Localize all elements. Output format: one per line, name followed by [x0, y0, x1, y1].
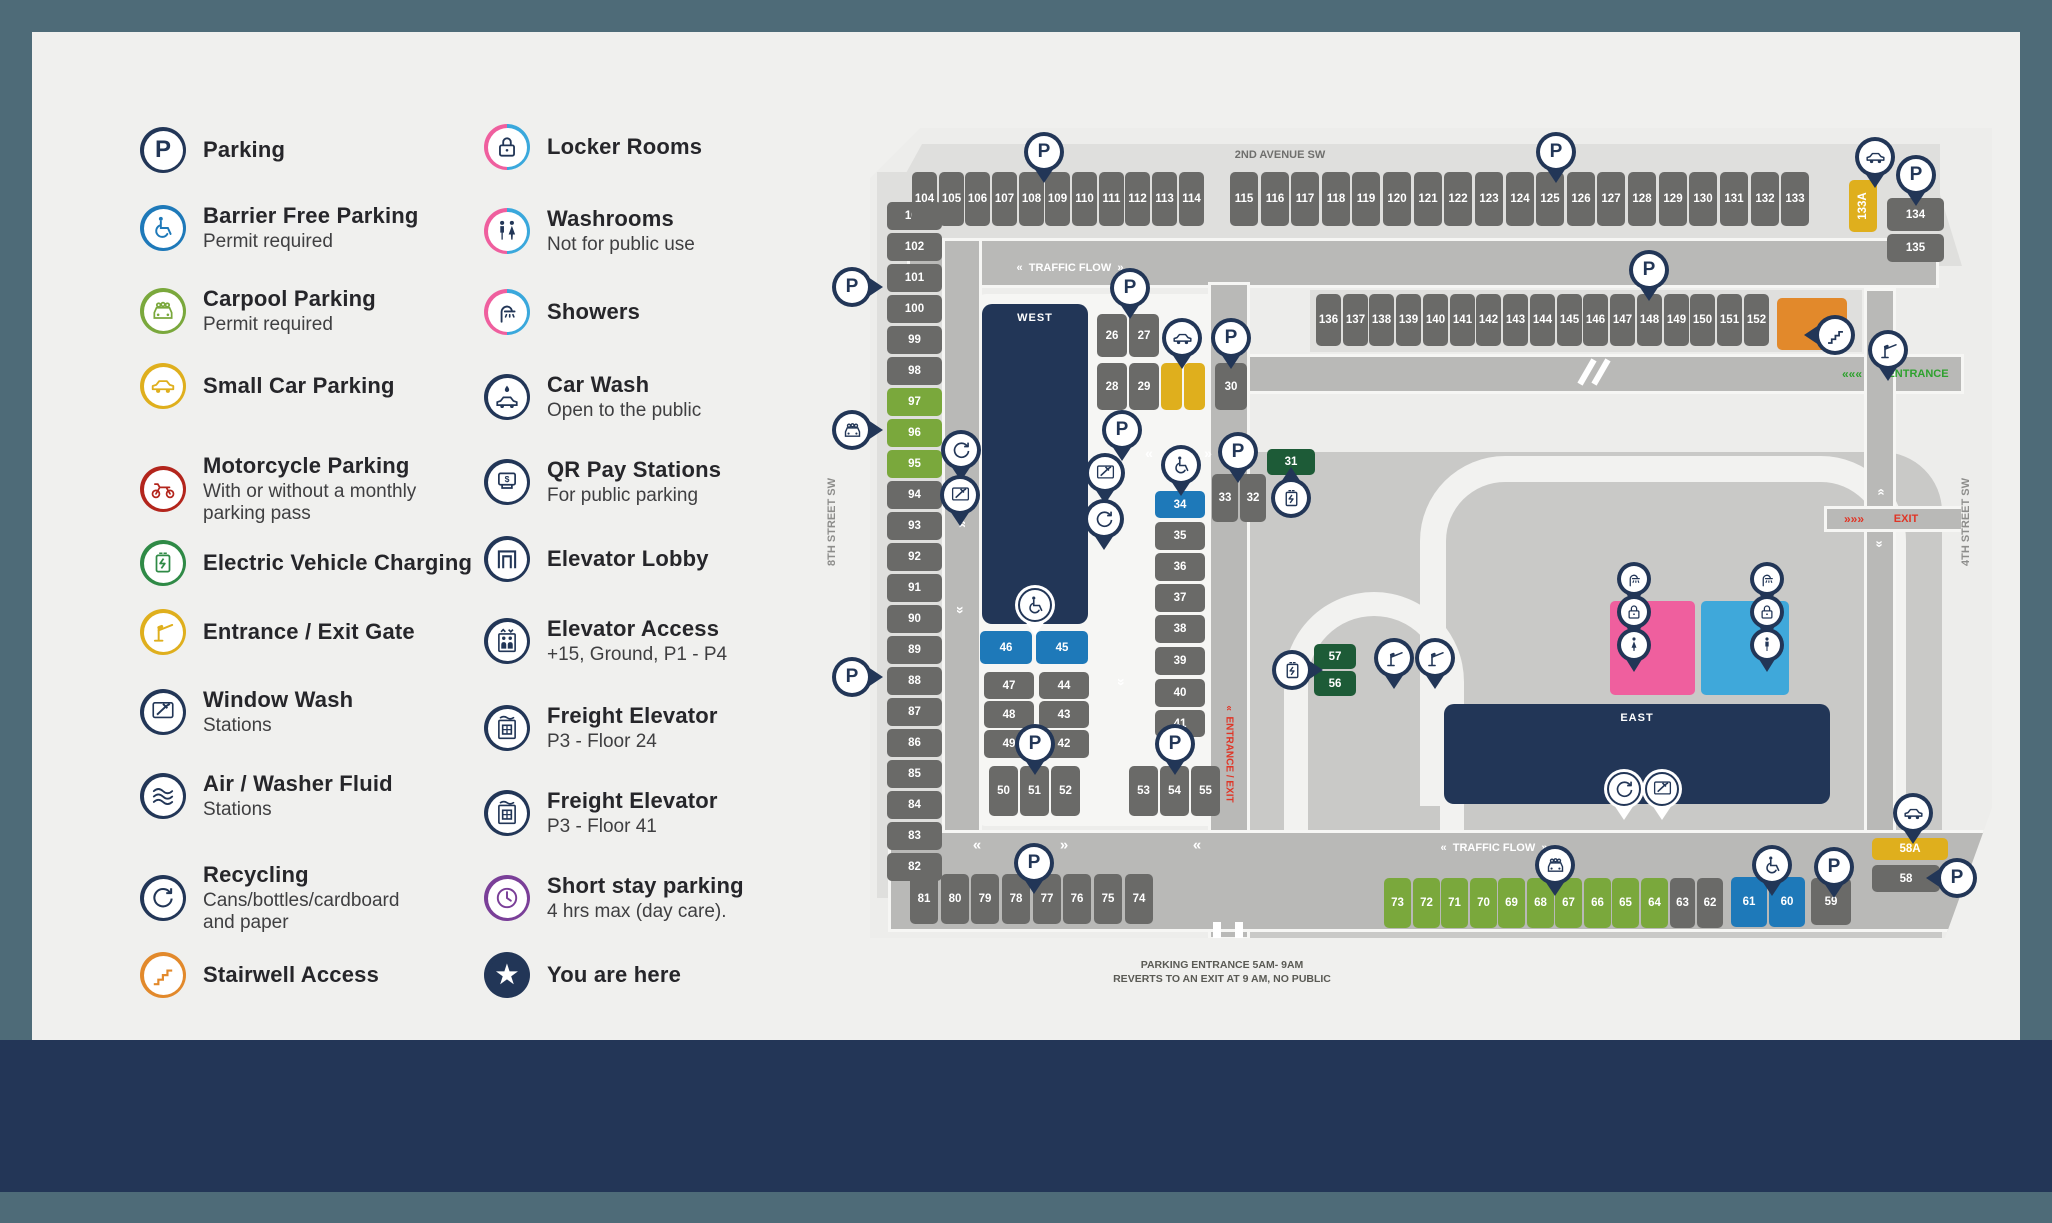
parking-stall-88: 88: [887, 667, 942, 695]
locker-pin: [1617, 595, 1651, 629]
parking-stall-28: 28: [1097, 363, 1127, 410]
parking-stall-43: 43: [1039, 701, 1089, 728]
recycle-pin: [941, 430, 981, 470]
parking-stall-74: 74: [1125, 874, 1153, 924]
parking-stall-36: 36: [1155, 553, 1205, 581]
parking-stall-79: 79: [971, 874, 999, 924]
parking-stall-151: 151: [1717, 294, 1742, 346]
parking-pin: P: [1218, 432, 1258, 472]
map-label: EXIT: [1894, 513, 1918, 525]
parking-stall-105: 105: [939, 172, 964, 226]
windowwash-pin: [1642, 769, 1682, 809]
parking-pin: P: [1015, 724, 1055, 764]
parking-stall-143: 143: [1503, 294, 1528, 346]
parking-stall-66: 66: [1584, 878, 1611, 928]
parking-stall-63: 63: [1670, 878, 1695, 928]
parking-stall-119: 119: [1352, 172, 1380, 226]
parking-stall-117: 117: [1291, 172, 1319, 226]
map-block: [1184, 363, 1205, 410]
parking-stall-102: 102: [887, 233, 942, 261]
recycle-pin: [1604, 769, 1644, 809]
parking-stall-27: 27: [1129, 314, 1159, 357]
parking-pin: P: [1937, 858, 1977, 898]
wheelchair-pin: [1752, 845, 1792, 885]
carpool-pin: [1535, 845, 1575, 885]
parking-stall-152: 152: [1744, 294, 1769, 346]
ev-pin: [1271, 478, 1311, 518]
parking-stall-127: 127: [1597, 172, 1625, 226]
wheelchair-pin: [1015, 585, 1055, 625]
map-label: »: [1873, 488, 1888, 495]
parking-stall-139: 139: [1396, 294, 1421, 346]
parking-stall-76: 76: [1063, 874, 1091, 924]
parking-stall-137: 137: [1343, 294, 1368, 346]
gate-pin: [1374, 638, 1414, 678]
parking-stall-37: 37: [1155, 584, 1205, 612]
parking-stall-69: 69: [1498, 878, 1525, 928]
stair-pin: [1815, 315, 1855, 355]
car-pin: [1855, 137, 1895, 177]
parking-stall-90: 90: [887, 605, 942, 633]
parking-stall-26: 26: [1097, 314, 1127, 357]
parking-pin: P: [1102, 410, 1142, 450]
locker-pin: [1750, 595, 1784, 629]
parking-stall-75: 75: [1094, 874, 1122, 924]
map-label: 2ND AVENUE SW: [1235, 149, 1325, 161]
parking-stall-123: 123: [1475, 172, 1503, 226]
map-items: 1031021011009998979695949392919089888786…: [32, 32, 2020, 1040]
parking-stall-131: 131: [1720, 172, 1748, 226]
parking-pin: P: [1896, 155, 1936, 195]
parking-stall-96: 96: [887, 419, 942, 447]
parking-stall-110: 110: [1072, 172, 1097, 226]
wheelchair-pin: [1161, 445, 1201, 485]
tower-label: WEST: [982, 312, 1088, 324]
parking-stall-144: 144: [1530, 294, 1555, 346]
parking-stall-91: 91: [887, 574, 942, 602]
parking-stall-122: 122: [1444, 172, 1472, 226]
map-label: »»»: [1844, 512, 1864, 526]
parking-stall-138: 138: [1369, 294, 1394, 346]
parking-stall-149: 149: [1664, 294, 1689, 346]
parking-stall-71: 71: [1441, 878, 1468, 928]
map-label: »: [1114, 678, 1130, 686]
poster-content: PParkingBarrier Free ParkingPermit requi…: [32, 32, 2020, 1040]
parking-stall-92: 92: [887, 543, 942, 571]
parking-stall-50: 50: [989, 766, 1018, 816]
parking-stall-141: 141: [1450, 294, 1475, 346]
parking-stall-38: 38: [1155, 615, 1205, 643]
parking-stall-104: 104: [912, 172, 937, 226]
map-label: REVERTS TO AN EXIT AT 9 AM, NO PUBLIC: [1113, 973, 1331, 985]
parking-stall-148: 148: [1637, 294, 1662, 346]
parking-stall-85: 85: [887, 760, 942, 788]
parking-stall-112: 112: [1125, 172, 1150, 226]
parking-stall-93: 93: [887, 512, 942, 540]
parking-stall-98: 98: [887, 357, 942, 385]
parking-stall-65: 65: [1612, 878, 1639, 928]
parking-stall-150: 150: [1690, 294, 1715, 346]
gate-pin: [1415, 638, 1455, 678]
parking-stall-140: 140: [1423, 294, 1448, 346]
parking-stall-40: 40: [1155, 679, 1205, 707]
map-label: »: [1873, 540, 1888, 547]
parking-stall-39: 39: [1155, 647, 1205, 675]
parking-stall-89: 89: [887, 636, 942, 664]
parking-stall-81: 81: [910, 874, 938, 924]
parking-stall-111: 111: [1099, 172, 1124, 226]
parking-pin: P: [1814, 847, 1854, 887]
gate-pin: [1868, 330, 1908, 370]
parking-pin: P: [1536, 132, 1576, 172]
parking-stall-44: 44: [1039, 672, 1089, 699]
map-label: »: [1060, 837, 1068, 854]
parking-stall-100: 100: [887, 295, 942, 323]
parking-pin: P: [1211, 318, 1251, 358]
parking-stall-80: 80: [941, 874, 969, 924]
parking-stall-48: 48: [984, 701, 1034, 728]
parking-stall-106: 106: [965, 172, 990, 226]
map-label: PARKING ENTRANCE 5AM- 9AM: [1141, 959, 1304, 971]
recycle-pin: [1084, 499, 1124, 539]
parking-stall-129: 129: [1659, 172, 1687, 226]
parking-stall-116: 116: [1261, 172, 1289, 226]
parking-stall-94: 94: [887, 481, 942, 509]
parking-stall-70: 70: [1470, 878, 1497, 928]
footer: OXFORD P1 Centennial Place East 520 3 Av…: [0, 1040, 2052, 1192]
map-label: 8TH STREET SW: [826, 478, 838, 566]
parking-stall-95: 95: [887, 450, 942, 478]
tower-west: WEST: [982, 304, 1088, 624]
map-label: «: [1193, 837, 1201, 854]
shower-pin: [1750, 562, 1784, 596]
parking-pin: P: [1014, 843, 1054, 883]
map-label: 4TH STREET SW: [1960, 478, 1972, 566]
windowwash-pin: [1085, 453, 1125, 493]
parking-stall-86: 86: [887, 729, 942, 757]
parking-stall-97: 97: [887, 388, 942, 416]
carpool-pin: [832, 410, 872, 450]
map-label: « ENTRANCE / EXIT: [1224, 705, 1235, 802]
washroom_f-pin: [1617, 628, 1651, 662]
map-label: « TRAFFIC FLOW »: [1441, 842, 1548, 854]
parking-stall-130: 130: [1689, 172, 1717, 226]
map-label: « TRAFFIC FLOW »: [1017, 262, 1124, 274]
car-pin: [1893, 793, 1933, 833]
parking-stall-53: 53: [1129, 766, 1158, 816]
parking-map-poster: PParkingBarrier Free ParkingPermit requi…: [0, 0, 2052, 1223]
windowwash-pin: [940, 475, 980, 515]
map-label: «: [1145, 445, 1153, 461]
parking-stall-121: 121: [1414, 172, 1442, 226]
parking-stall-35: 35: [1155, 522, 1205, 550]
parking-stall-133: 133: [1781, 172, 1809, 226]
ev-pin: [1272, 650, 1312, 690]
parking-stall-62: 62: [1697, 878, 1723, 928]
bottom-frame-strip: [0, 1192, 2052, 1223]
parking-stall-132: 132: [1751, 172, 1779, 226]
parking-stall-99: 99: [887, 326, 942, 354]
parking-stall-145: 145: [1557, 294, 1582, 346]
map-label: »: [953, 606, 969, 614]
map-label: «: [973, 837, 981, 854]
car-pin: [1162, 318, 1202, 358]
parking-pin: P: [832, 267, 872, 307]
parking-stall-72: 72: [1413, 878, 1440, 928]
parking-stall-87: 87: [887, 698, 942, 726]
parking-stall-29: 29: [1129, 363, 1159, 410]
parking-stall-30: 30: [1215, 363, 1247, 410]
parking-stall-136: 136: [1316, 294, 1341, 346]
parking-stall-142: 142: [1476, 294, 1501, 346]
parking-stall-124: 124: [1506, 172, 1534, 226]
parking-stall-64: 64: [1641, 878, 1668, 928]
parking-stall-73: 73: [1384, 878, 1411, 928]
parking-stall-84: 84: [887, 791, 942, 819]
parking-stall-55: 55: [1191, 766, 1220, 816]
parking-stall-107: 107: [992, 172, 1017, 226]
parking-pin: P: [1629, 250, 1669, 290]
parking-stall-135: 135: [1887, 234, 1944, 262]
tower-label: EAST: [1444, 712, 1830, 724]
shower-pin: [1617, 562, 1651, 596]
parking-stall-126: 126: [1567, 172, 1595, 226]
parking-stall-128: 128: [1628, 172, 1656, 226]
parking-pin: P: [1110, 268, 1150, 308]
parking-stall-114: 114: [1179, 172, 1204, 226]
parking-pin: P: [1155, 724, 1195, 764]
map-block: [1161, 363, 1182, 410]
parking-stall-47: 47: [984, 672, 1034, 699]
parking-stall-146: 146: [1583, 294, 1608, 346]
parking-pin: P: [832, 657, 872, 697]
parking-stall-52: 52: [1051, 766, 1080, 816]
parking-stall-120: 120: [1383, 172, 1411, 226]
washroom_m-pin: [1750, 628, 1784, 662]
map-label: »: [1204, 445, 1212, 461]
parking-stall-118: 118: [1322, 172, 1350, 226]
parking-stall-83: 83: [887, 822, 942, 850]
parking-stall-101: 101: [887, 264, 942, 292]
parking-pin: P: [1024, 132, 1064, 172]
parking-stall-147: 147: [1610, 294, 1635, 346]
map-label: «««: [1842, 367, 1862, 381]
parking-stall-115: 115: [1230, 172, 1258, 226]
parking-stall-113: 113: [1152, 172, 1177, 226]
